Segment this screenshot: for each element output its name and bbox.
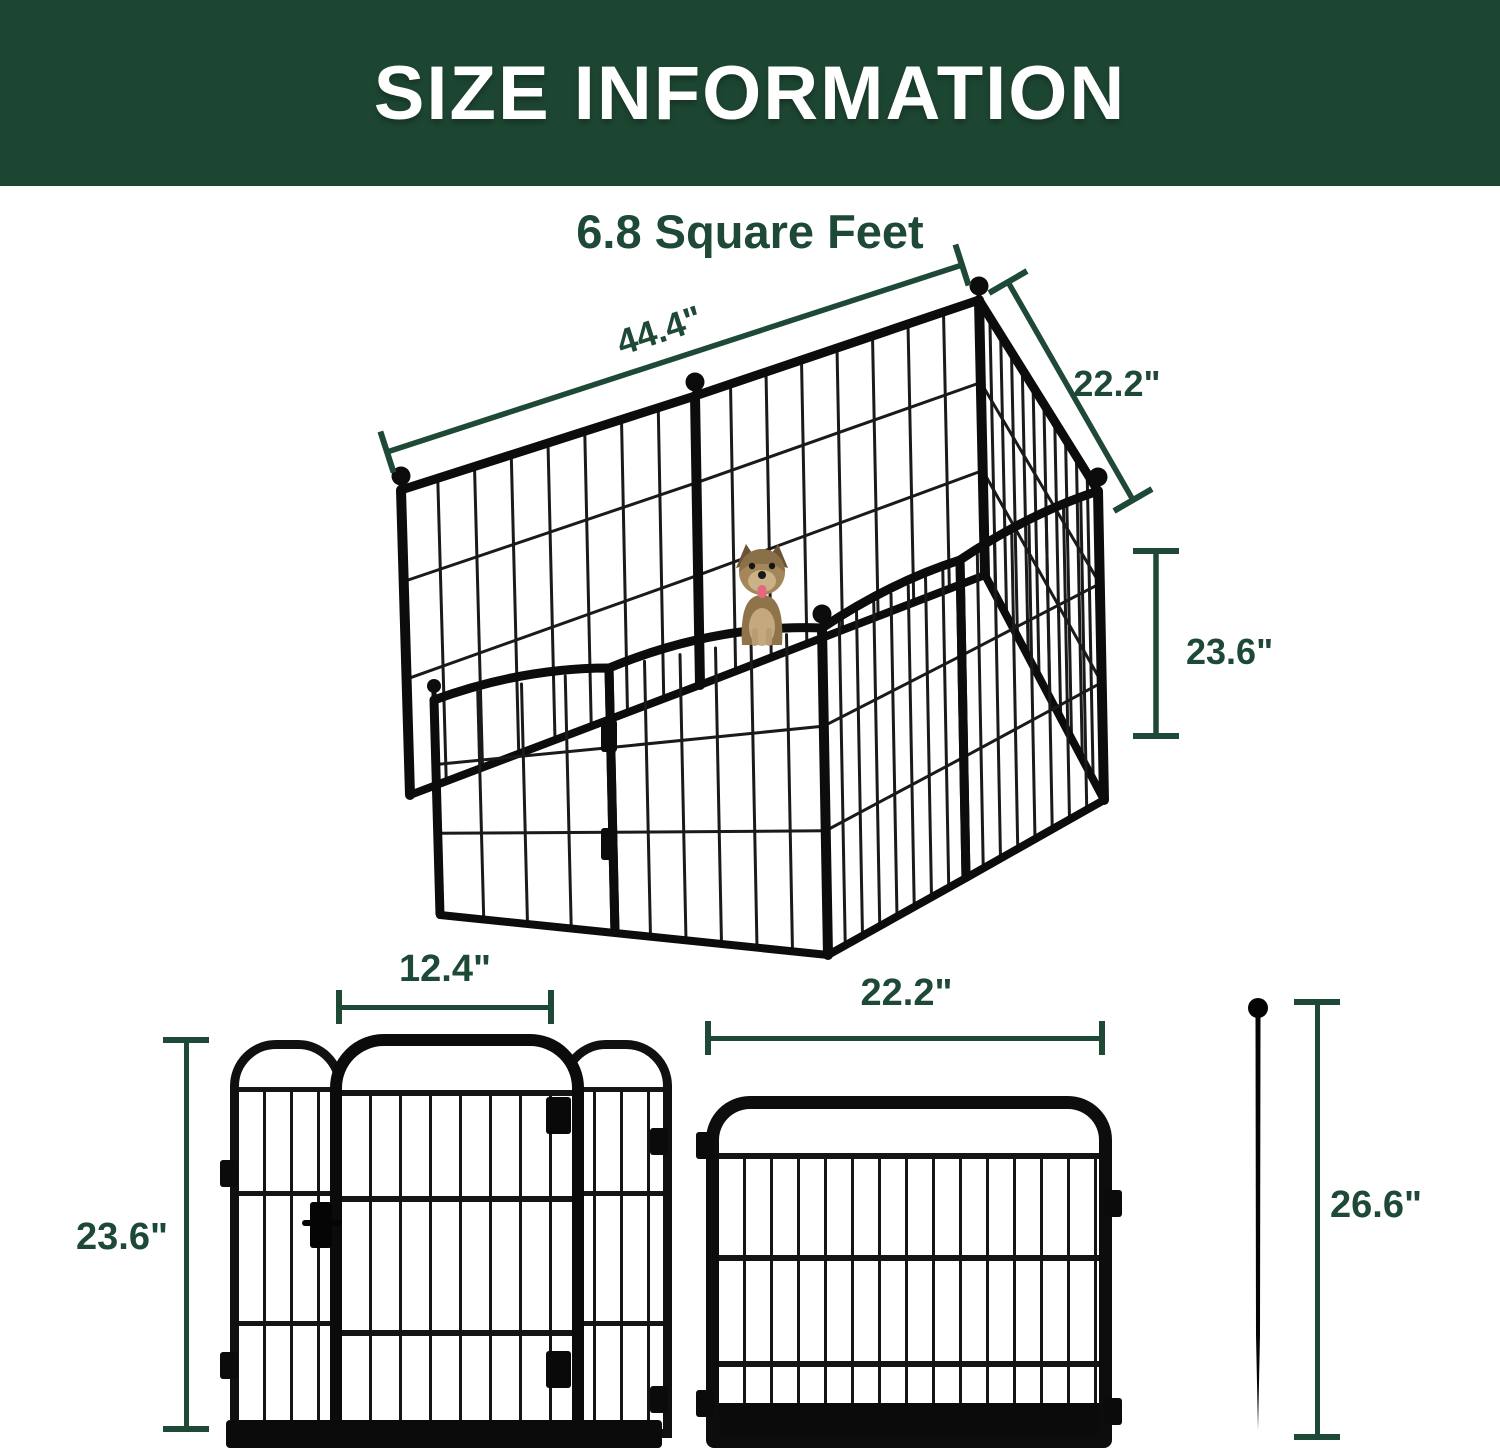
stake-height-label: 26.6" [1330,1184,1422,1227]
panel-width-label: 22.2" [708,972,1105,1015]
stake-height-dim-line [1315,1002,1320,1438]
connector-tab [650,1386,668,1413]
panel-width-dim-cap [1099,1021,1105,1055]
pen-depth-label: 22.2" [1073,363,1160,404]
dog-illustration [736,544,788,646]
depth-dim-cap [989,271,1027,293]
door-hinge-bottom [546,1351,571,1388]
size-information-infographic: SIZE INFORMATION 6.8 Square Feet [0,0,1500,1448]
door-hinge-top [546,1097,571,1134]
connector-tab [650,1128,668,1155]
connector-tab [1104,1190,1122,1217]
door-width-dim-line [339,1005,551,1010]
door-width-dim-cap [548,990,554,1024]
pen-height-label: 23.6" [1186,631,1273,672]
connector-tab [220,1160,238,1187]
stake-shaft [1256,1016,1261,1430]
ground-stake-illustration [1230,990,1310,1440]
door-panel-height-dim-line [184,1040,189,1430]
plain-panel-diagram [706,1096,1112,1448]
connector-tab [220,1352,238,1379]
connector-tab [696,1132,714,1159]
stake-height-dim-cap [1294,1434,1340,1440]
door-panel-base-bar [226,1420,662,1448]
depth-dim-cap [1114,489,1152,511]
door-panel-height-dim-cap [163,1426,209,1432]
panel-width-dim-line [708,1036,1105,1041]
connector-tab [696,1390,714,1417]
door-panel-height-label: 23.6" [76,1216,168,1259]
door-latch [310,1202,332,1248]
panel-width-dim-cap [705,1021,711,1055]
door-width-label: 12.4" [339,948,551,991]
connector-tab [1104,1398,1122,1425]
stake-height-dim-cap [1294,999,1340,1005]
door-width-dim-cap [336,990,342,1024]
door-panel-diagram [222,1034,666,1448]
plain-panel-frame [706,1096,1112,1448]
door-panel-height-dim-cap [163,1037,209,1043]
